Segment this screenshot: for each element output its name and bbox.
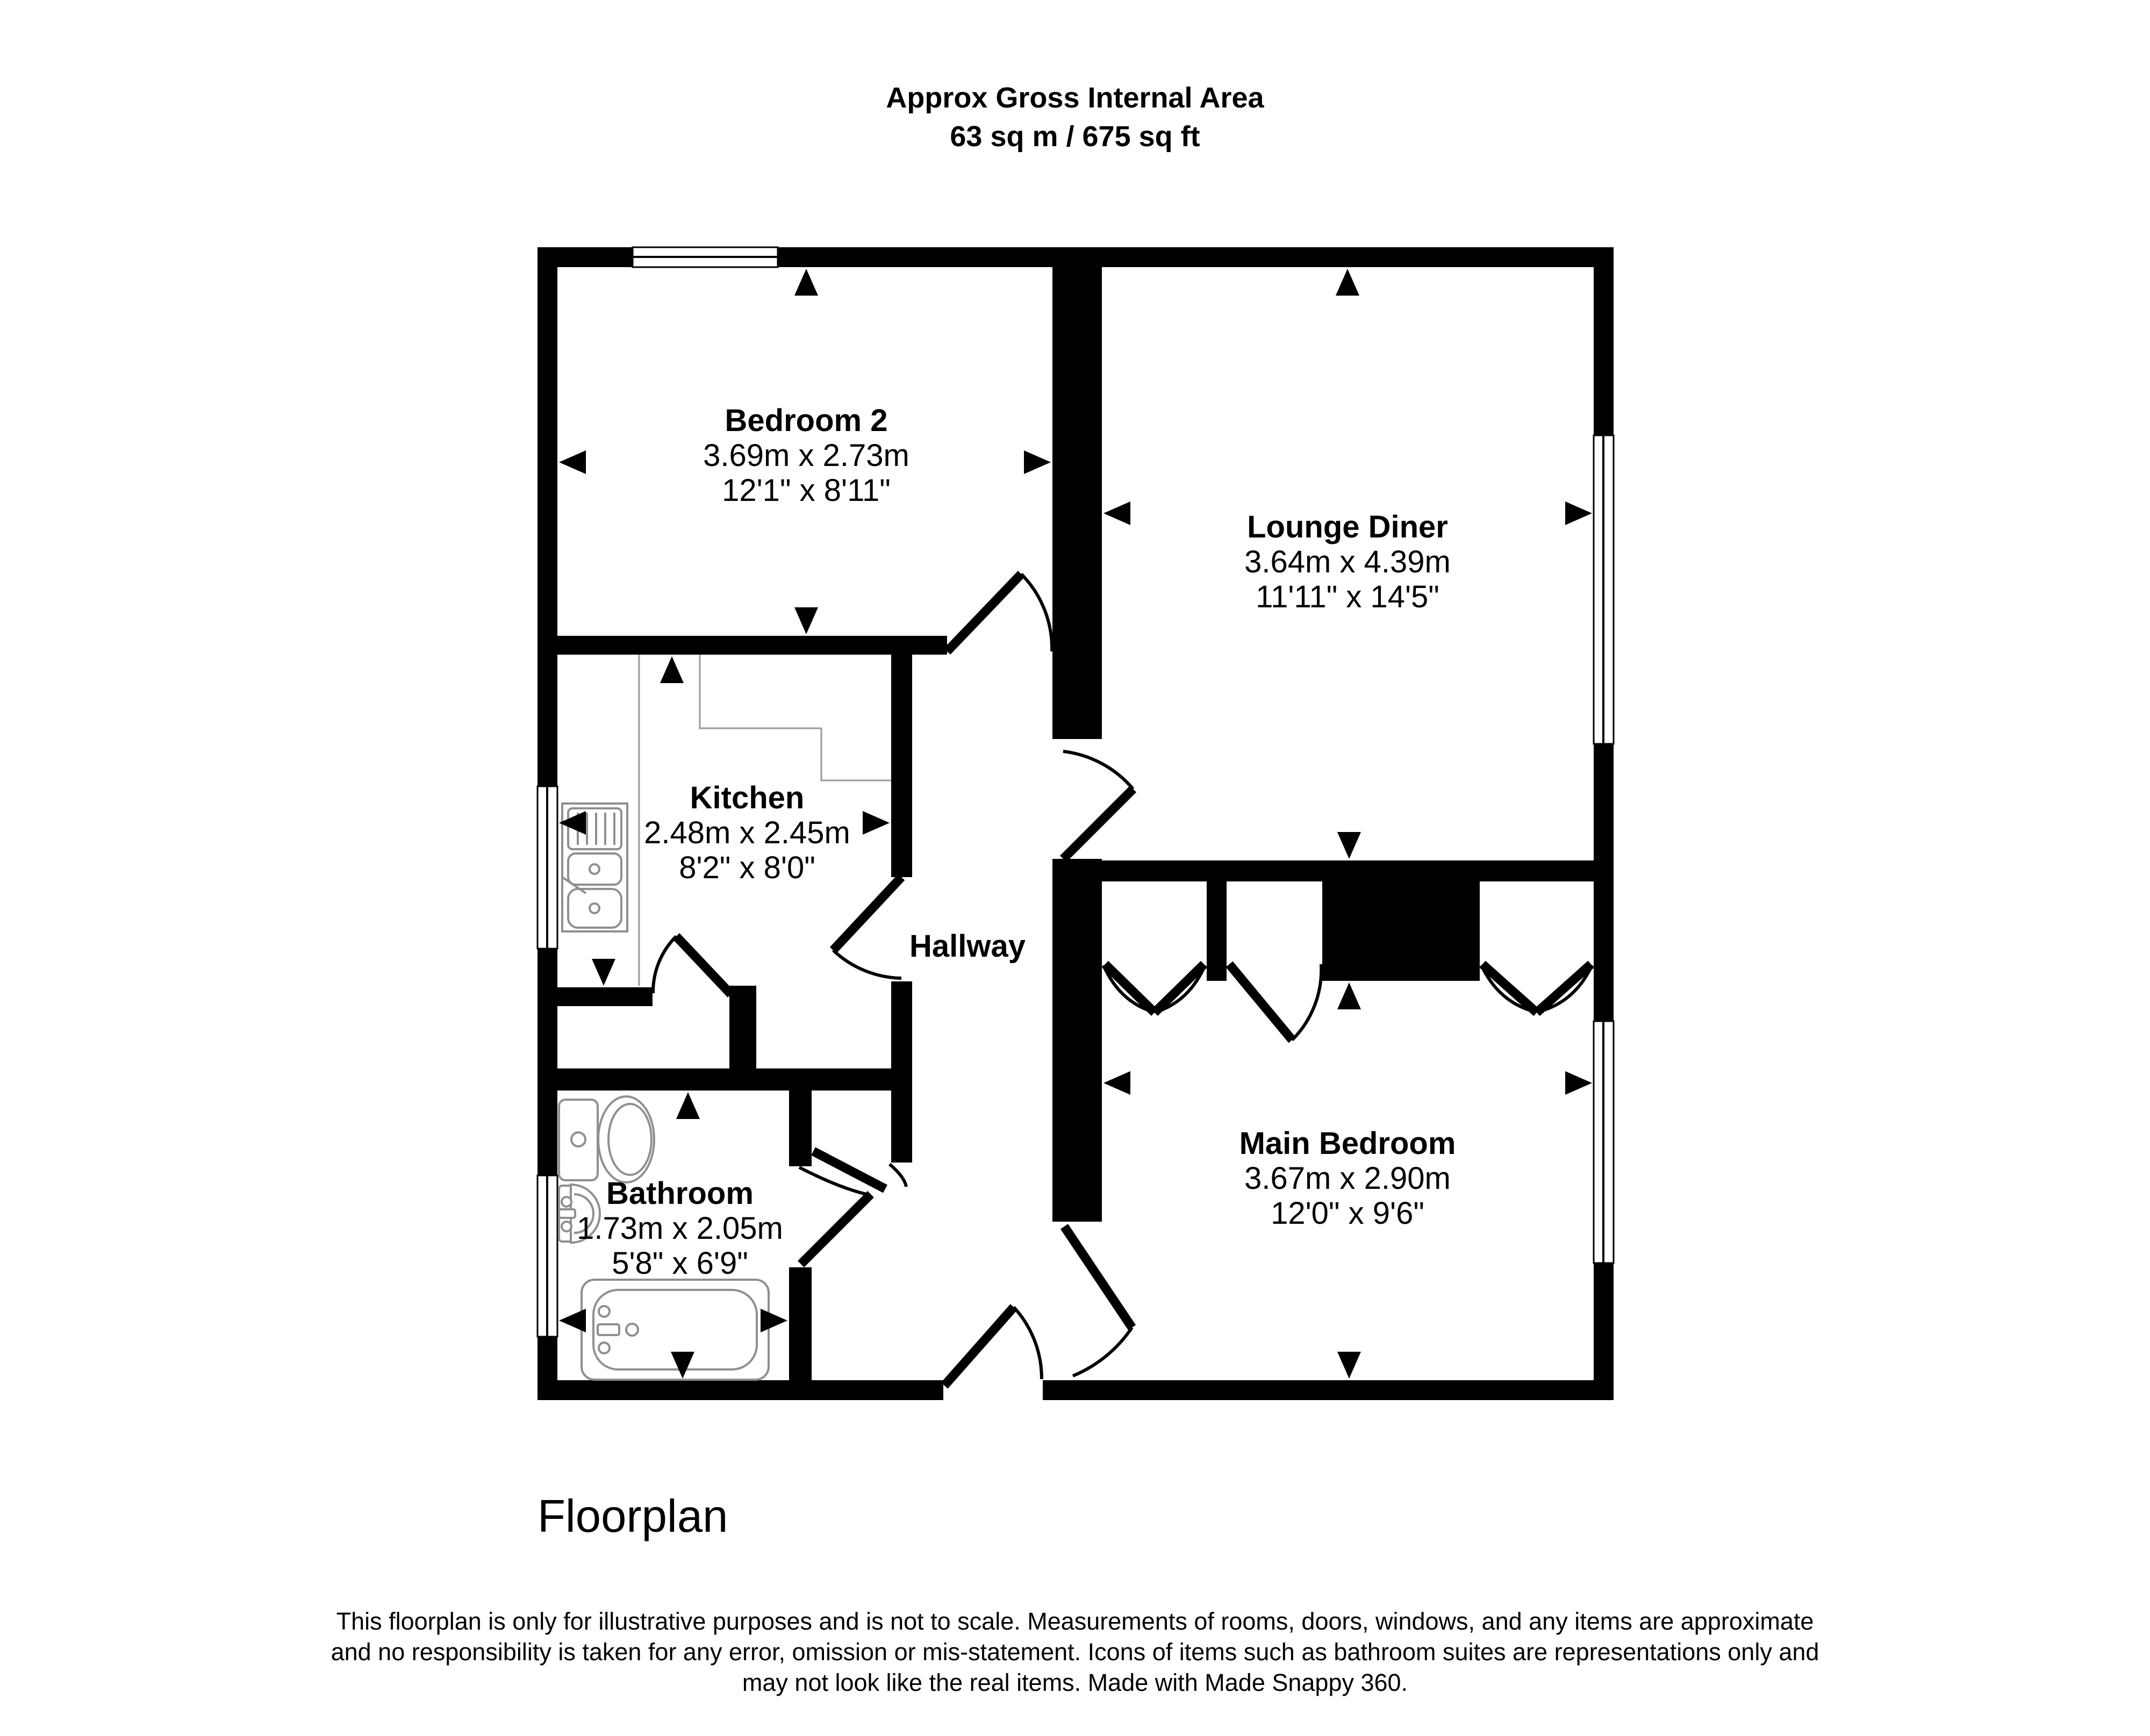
window-bedroom2-top — [633, 247, 778, 267]
arrow-down-lounge — [1337, 832, 1361, 859]
toilet-icon — [559, 1096, 654, 1182]
room-metric: 3.64m x 4.39m — [1244, 544, 1451, 579]
door-kitchen-inner — [653, 936, 731, 994]
room-labels: Bedroom 2 3.69m x 2.73m 12'1" x 8'11" Lo… — [577, 403, 1456, 1281]
wall-kitchen-right-upper — [891, 655, 912, 877]
room-name: Lounge Diner — [1247, 510, 1448, 544]
room-imperial: 12'1" x 8'11" — [722, 473, 891, 508]
room-label-main-bedroom: Main Bedroom 3.67m x 2.90m 12'0" x 9'6" — [1239, 1126, 1456, 1231]
title-line1: Approx Gross Internal Area — [886, 82, 1264, 114]
room-label-bathroom: Bathroom 1.73m x 2.05m 5'8" x 6'9" — [577, 1176, 783, 1281]
window-bathroom-left — [537, 1175, 557, 1337]
title-line2: 63 sq m / 675 sq ft — [950, 120, 1200, 153]
room-metric: 3.69m x 2.73m — [703, 438, 909, 473]
room-metric: 2.48m x 2.45m — [644, 815, 850, 850]
entrance-opening — [943, 1379, 1043, 1401]
wall-closet-block — [1322, 881, 1458, 981]
wall-closet-stub-2 — [1458, 881, 1480, 981]
door-entrance — [944, 1307, 1042, 1386]
bathtub-icon — [582, 1280, 769, 1380]
arrow-up-bathroom — [676, 1092, 700, 1119]
floorplan-page: Approx Gross Internal Area 63 sq m / 675… — [0, 0, 2150, 1736]
arrow-down-main-bedroom — [1337, 1352, 1361, 1379]
room-label-kitchen: Kitchen 2.48m x 2.45m 8'2" x 8'0" — [644, 780, 850, 885]
arrow-up-kitchen — [660, 656, 684, 683]
room-name: Main Bedroom — [1239, 1126, 1456, 1161]
wall-bathroom-top — [556, 1068, 912, 1091]
arrow-down-kitchen — [592, 959, 615, 986]
disclaimer-line1: This floorplan is only for illustrative … — [336, 1608, 1814, 1635]
wall-bedroom2-bottom — [537, 636, 947, 655]
arrow-left-main-bedroom — [1103, 1071, 1130, 1095]
wall-closet-top — [1102, 860, 1594, 881]
room-imperial: 8'2" x 8'0" — [679, 850, 815, 885]
room-name: Bedroom 2 — [725, 403, 888, 438]
wall-divider-upper — [1052, 247, 1102, 739]
window-lounge-right — [1594, 435, 1614, 744]
door-kitchen-hallway — [833, 877, 901, 978]
room-metric: 3.67m x 2.90m — [1244, 1161, 1451, 1196]
arrow-left-lounge — [1103, 501, 1130, 525]
door-bedroom2 — [947, 574, 1052, 651]
arrow-right-lounge — [1565, 501, 1592, 525]
arrow-up-bedroom2 — [794, 269, 818, 296]
wall-bathroom-right-upper — [789, 1091, 812, 1166]
room-label-hallway: Hallway — [909, 929, 1026, 964]
room-name: Hallway — [909, 929, 1026, 964]
door-closet-1 — [1103, 964, 1205, 1013]
arrow-right-bathroom — [761, 1309, 787, 1332]
door-closet-2 — [1229, 964, 1321, 1040]
door-main-bedroom — [1064, 1226, 1132, 1376]
disclaimer-line2: and no responsibility is taken for any e… — [331, 1638, 1819, 1666]
wall-outer-bottom — [537, 1380, 1614, 1400]
arrow-down-bedroom2 — [794, 607, 818, 634]
room-imperial: 11'11" x 14'5" — [1256, 579, 1439, 614]
door-closet-3 — [1481, 964, 1592, 1013]
room-imperial: 5'8" x 6'9" — [612, 1246, 748, 1281]
window-kitchen-left — [537, 786, 557, 949]
room-metric: 1.73m x 2.05m — [577, 1211, 783, 1246]
arrow-up-lounge — [1336, 269, 1359, 296]
room-label-lounge-diner: Lounge Diner 3.64m x 4.39m 11'11" x 14'5… — [1244, 510, 1451, 614]
window-main-bedroom-right — [1594, 1021, 1614, 1263]
caption-floorplan: Floorplan — [537, 1491, 728, 1542]
arrow-right-main-bedroom — [1565, 1071, 1592, 1095]
floorplan-image: Approx Gross Internal Area 63 sq m / 675… — [0, 0, 2150, 1736]
room-name: Kitchen — [690, 780, 805, 815]
title-block: Approx Gross Internal Area 63 sq m / 675… — [886, 82, 1264, 153]
door-bathroom — [799, 1151, 906, 1264]
disclaimer: This floorplan is only for illustrative … — [331, 1608, 1819, 1696]
arrow-left-bathroom — [559, 1309, 586, 1332]
kitchen-counter-step — [700, 655, 891, 780]
room-imperial: 12'0" x 9'6" — [1271, 1196, 1424, 1231]
room-label-bedroom2: Bedroom 2 3.69m x 2.73m 12'1" x 8'11" — [703, 403, 909, 508]
arrow-right-kitchen — [863, 811, 890, 835]
wall-closet-stub-1 — [1207, 881, 1227, 981]
door-lounge — [1063, 751, 1133, 859]
wall-kitchen-bottom — [556, 987, 653, 1006]
disclaimer-line3: may not look like the real items. Made w… — [742, 1669, 1408, 1696]
wall-bathroom-right-lower — [789, 1267, 812, 1380]
room-name: Bathroom — [606, 1176, 754, 1211]
arrow-right-bedroom2 — [1024, 450, 1051, 474]
wall-divider-lower — [1052, 859, 1102, 1222]
arrow-up-main-bedroom — [1337, 982, 1361, 1009]
arrow-left-bedroom2 — [559, 450, 586, 474]
